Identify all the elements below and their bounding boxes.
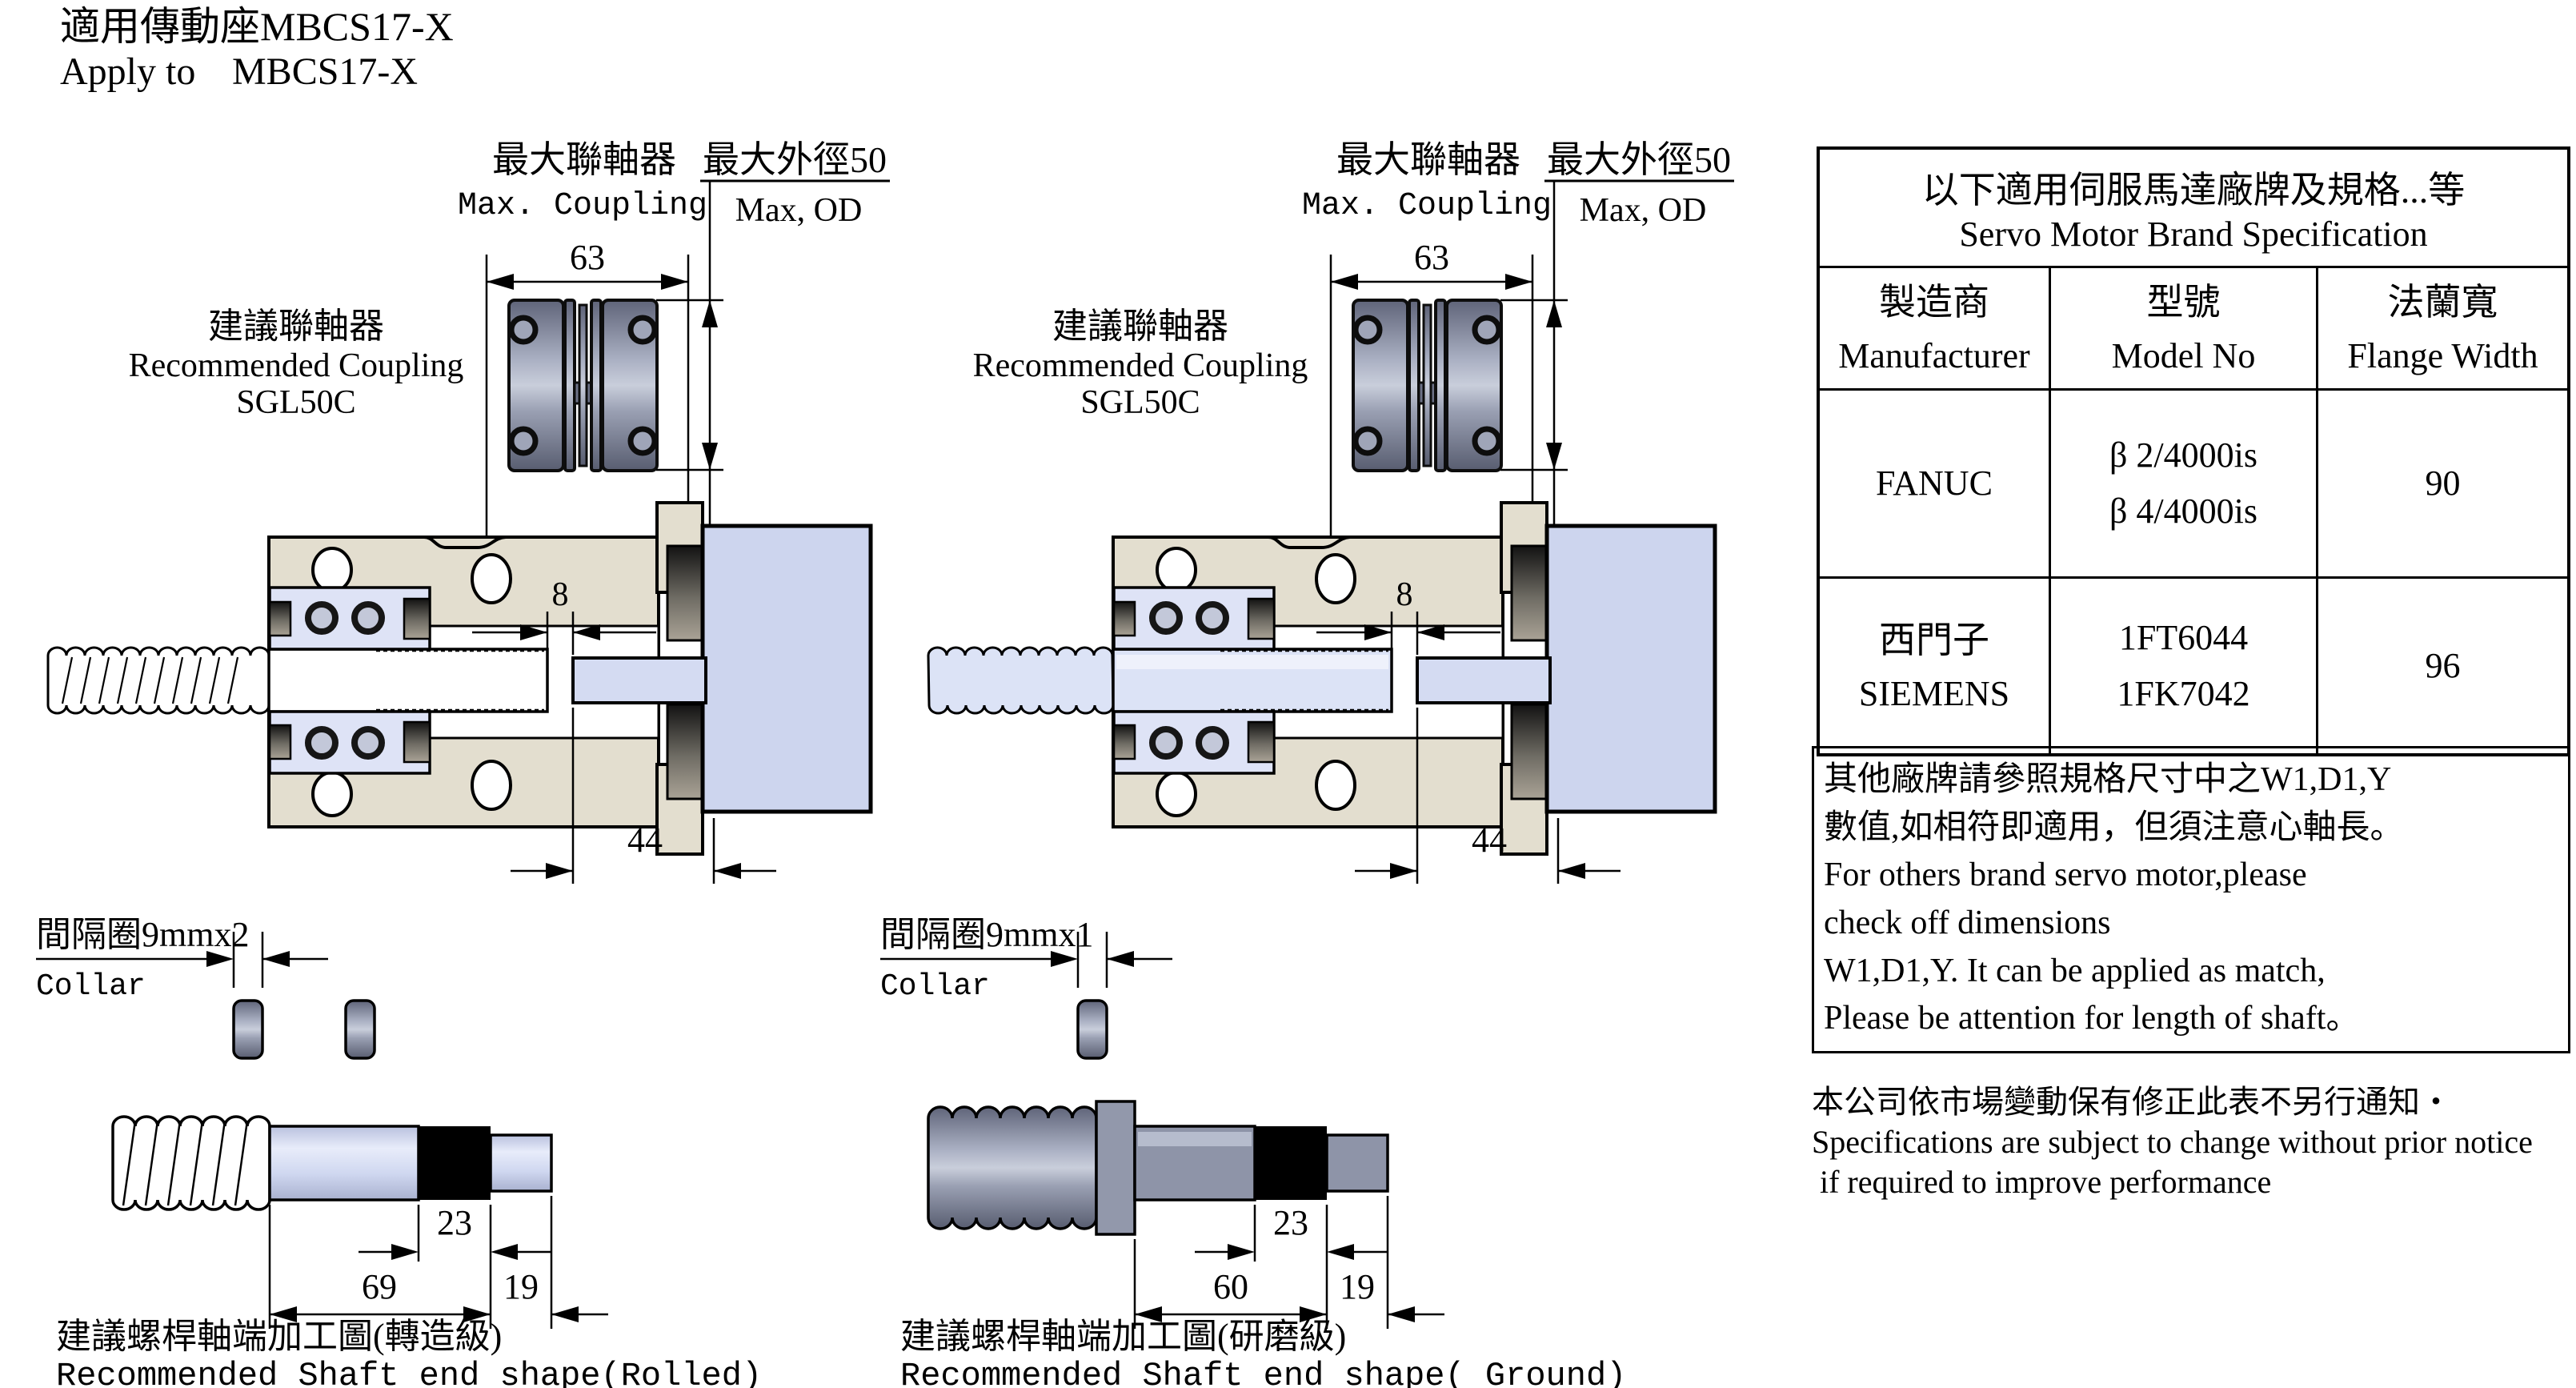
disclaimer: 本公司依市場變動保有修正此表不另行通知・ Specifications are … (1812, 1082, 2576, 1202)
disclaimer-en-2: if required to improve performance (1812, 1162, 2576, 1202)
coupling-bolt-hole (511, 318, 535, 342)
flange-seal-bottom (667, 704, 703, 799)
shaft-caption-zh: 建議螺桿軸端加工圖(轉造級) (56, 1317, 502, 1356)
header-model-zh: 型號 (2147, 275, 2221, 330)
housing-hole (1316, 555, 1355, 603)
model-no: 1FT6044 (2119, 610, 2248, 666)
label-max-coupling-en: Max. Coupling (458, 188, 707, 224)
dim-23-value: 23 (437, 1203, 472, 1242)
disclaimer-zh: 本公司依市場變動保有修正此表不另行通知・ (1812, 1082, 2576, 1122)
shaft-end-drawing (113, 1117, 551, 1209)
label-rec-coupling-model: SGL50C (236, 384, 355, 421)
cell-models: β 2/4000is β 4/4000is (2051, 391, 2318, 576)
screw-shaft (48, 648, 547, 713)
label-max-od-en: Max, OD (735, 192, 863, 229)
header-flange-en: Flange Width (2347, 330, 2538, 383)
coupling-bolt-hole (631, 429, 655, 453)
housing-hole (313, 772, 351, 816)
spec-table-header-row: 製造商 Manufacturer 型號 Model No 法蘭寬 Flange … (1820, 268, 2567, 391)
disclaimer-en-1: Specifications are subject to change wit… (1812, 1122, 2576, 1162)
motor-block (1547, 526, 1715, 812)
compatibility-note: 其他廠牌請參照規格尺寸中之W1,D1,Y 數值,如相符即適用，但須注意心軸長。 … (1812, 746, 2570, 1053)
label-collar-en: Collar (36, 969, 146, 1004)
flange-width-value: 90 (2426, 457, 2461, 510)
flange-seal-top (667, 546, 703, 640)
shaft-end-journal (491, 1135, 551, 1191)
dimension-od (656, 181, 723, 526)
dim-8-value: 8 (1396, 576, 1413, 613)
motor-block (703, 526, 871, 812)
flange-seal-bottom (1512, 704, 1547, 799)
page-title-zh: 適用傳動座MBCS17-X (60, 5, 454, 49)
coupling-bolt-hole (1475, 318, 1499, 342)
assembly-drawing-rolled: 最大聯軸器 Max. Coupling 最大外徑50 Max, OD 63 (24, 128, 920, 1388)
dim-19-value: 19 (503, 1267, 539, 1306)
housing-hole (472, 761, 511, 809)
header-manufacturer: 製造商 Manufacturer (1820, 268, 2051, 388)
collar-ring (234, 1001, 262, 1058)
maker-name: FANUC (1876, 457, 1993, 510)
label-max-od-zh: 最大外徑50 (703, 139, 887, 180)
shaft-step-flange (1096, 1101, 1135, 1234)
model-no: 1FK7042 (2117, 666, 2249, 722)
housing-hole (313, 548, 351, 592)
shaft-black-band (1255, 1126, 1327, 1200)
label-max-od-en: Max, OD (1580, 192, 1707, 229)
model-no: β 2/4000is (2109, 427, 2258, 483)
coupling-bolt-hole (511, 429, 535, 453)
table-row-siemens: 西門子 SIEMENS 1FT6044 1FK7042 96 (1820, 579, 2567, 753)
label-max-coupling-en: Max. Coupling (1302, 188, 1552, 224)
cell-flange: 90 (2318, 391, 2567, 576)
dim-63-value: 63 (570, 238, 605, 277)
spec-table-title-zh: 以下適用伺服馬達廠牌及規格...等 (1922, 161, 2466, 214)
assembly-drawing-ground: 最大聯軸器 Max. Coupling 最大外徑50 Max, OD 63 (868, 128, 1765, 1388)
servo-spec-table: 以下適用伺服馬達廠牌及規格...等 Servo Motor Brand Spec… (1817, 146, 2570, 756)
shaft-end-journal (1327, 1135, 1388, 1191)
bearing-ball (355, 604, 382, 632)
cell-maker: 西門子 SIEMENS (1820, 579, 2051, 753)
label-rec-coupling-en: Recommended Coupling (129, 347, 464, 384)
dim-19-value: 19 (1340, 1267, 1375, 1306)
coupling-bolt-hole (1356, 318, 1380, 342)
flange-seal-top (1512, 546, 1547, 640)
housing-hole (1157, 772, 1196, 816)
maker-name-zh: 西門子 (1879, 612, 1989, 668)
spec-table-title-en: Servo Motor Brand Specification (1959, 214, 2427, 255)
page-title: 適用傳動座MBCS17-X Apply to MBCS17-X (60, 5, 454, 95)
dim-8-value: 8 (552, 576, 569, 613)
dim-23-value: 23 (1273, 1203, 1308, 1242)
housing-hole (1316, 761, 1355, 809)
header-model: 型號 Model No (2051, 268, 2318, 388)
label-max-od-zh: 最大外徑50 (1547, 139, 1731, 180)
drawing-page: 適用傳動座MBCS17-X Apply to MBCS17-X 最大聯軸器 M (0, 0, 2576, 1388)
shaft-black-band (419, 1126, 491, 1200)
motor-hub (1417, 658, 1550, 703)
note-line: check off dimensions (1824, 900, 2558, 948)
header-manufacturer-zh: 製造商 (1879, 275, 1989, 330)
table-row-fanuc: FANUC β 2/4000is β 4/4000is 90 (1820, 391, 2567, 579)
screw-body (269, 649, 547, 712)
coupling-bolt-hole (1475, 429, 1499, 453)
label-rec-coupling-en: Recommended Coupling (973, 347, 1308, 384)
coupling-bolt-hole (631, 318, 655, 342)
cell-models: 1FT6044 1FK7042 (2051, 579, 2318, 753)
screw-thread (928, 648, 1113, 713)
bearing-ball (308, 729, 335, 756)
flange-width-value: 96 (2426, 640, 2461, 692)
coupling-bolt-hole (1356, 429, 1380, 453)
label-rec-coupling-model: SGL50C (1080, 384, 1200, 421)
header-flange: 法蘭寬 Flange Width (2318, 268, 2567, 388)
shaft-caption-en: Recommended Shaft end shape(Rolled) (56, 1357, 762, 1388)
page-title-en-apply: Apply to (60, 49, 232, 95)
label-rec-coupling-zh: 建議聯軸器 (1052, 307, 1228, 346)
dim-63-value: 63 (1414, 238, 1449, 277)
shaft-highlight (1138, 1132, 1252, 1146)
dim-44-value: 44 (1472, 820, 1507, 860)
screw-shaft (928, 648, 1392, 713)
dim-60-value: 60 (1213, 1267, 1248, 1306)
shaft-caption-en: Recommended Shaft end shape( Ground) (900, 1357, 1626, 1388)
maker-name-en: SIEMENS (1859, 668, 2009, 720)
model-no: β 4/4000is (2109, 483, 2258, 540)
note-line: 數值,如相符即適用，但須注意心軸長。 (1824, 804, 2558, 852)
label-collar-zh: 間隔圈9mmx1 (880, 915, 1093, 954)
dim-44-value: 44 (627, 820, 663, 860)
label-max-coupling-zh: 最大聯軸器 (492, 139, 676, 180)
page-title-en: Apply to MBCS17-X (60, 49, 454, 95)
housing-hole (1157, 548, 1196, 592)
shaft-end-drawing (928, 1101, 1388, 1234)
dim-69-value: 69 (362, 1267, 397, 1306)
bearing-ball (1152, 604, 1180, 632)
collar-ring (346, 1001, 375, 1058)
note-line: Please be attention for length of shaft。 (1824, 995, 2558, 1043)
header-manufacturer-en: Manufacturer (1838, 330, 2029, 383)
bearing-ball (1199, 604, 1226, 632)
cell-flange: 96 (2318, 579, 2567, 753)
page-title-en-model: MBCS17-X (232, 49, 418, 95)
label-collar-en: Collar (880, 969, 990, 1004)
bearing-ball (1199, 729, 1226, 756)
header-model-en: Model No (2112, 330, 2256, 383)
label-max-coupling-zh: 最大聯軸器 (1336, 139, 1520, 180)
label-collar-zh: 間隔圈9mmx2 (36, 915, 249, 954)
cell-maker: FANUC (1820, 391, 2051, 576)
note-line: For others brand servo motor,please (1824, 852, 2558, 900)
screw-highlight (1116, 655, 1388, 669)
bearing-ball (308, 604, 335, 632)
bearing-ball (1152, 729, 1180, 756)
dimension-od (1500, 181, 1568, 526)
shaft-caption-zh: 建議螺桿軸端加工圖(研磨級) (900, 1317, 1346, 1356)
housing-hole (472, 555, 511, 603)
collar-ring (1078, 1001, 1107, 1058)
shaft-thread (928, 1107, 1096, 1229)
note-line: W1,D1,Y. It can be applied as match, (1824, 948, 2558, 996)
bearing-ball (355, 729, 382, 756)
header-flange-zh: 法蘭寬 (2388, 275, 2498, 330)
note-line: 其他廠牌請參照規格尺寸中之W1,D1,Y (1824, 756, 2558, 804)
motor-hub (573, 658, 706, 703)
coupling (509, 300, 657, 471)
spec-table-title: 以下適用伺服馬達廠牌及規格...等 Servo Motor Brand Spec… (1820, 150, 2567, 268)
coupling (1353, 300, 1501, 471)
shaft-body (270, 1126, 419, 1200)
label-rec-coupling-zh: 建議聯軸器 (208, 307, 384, 346)
